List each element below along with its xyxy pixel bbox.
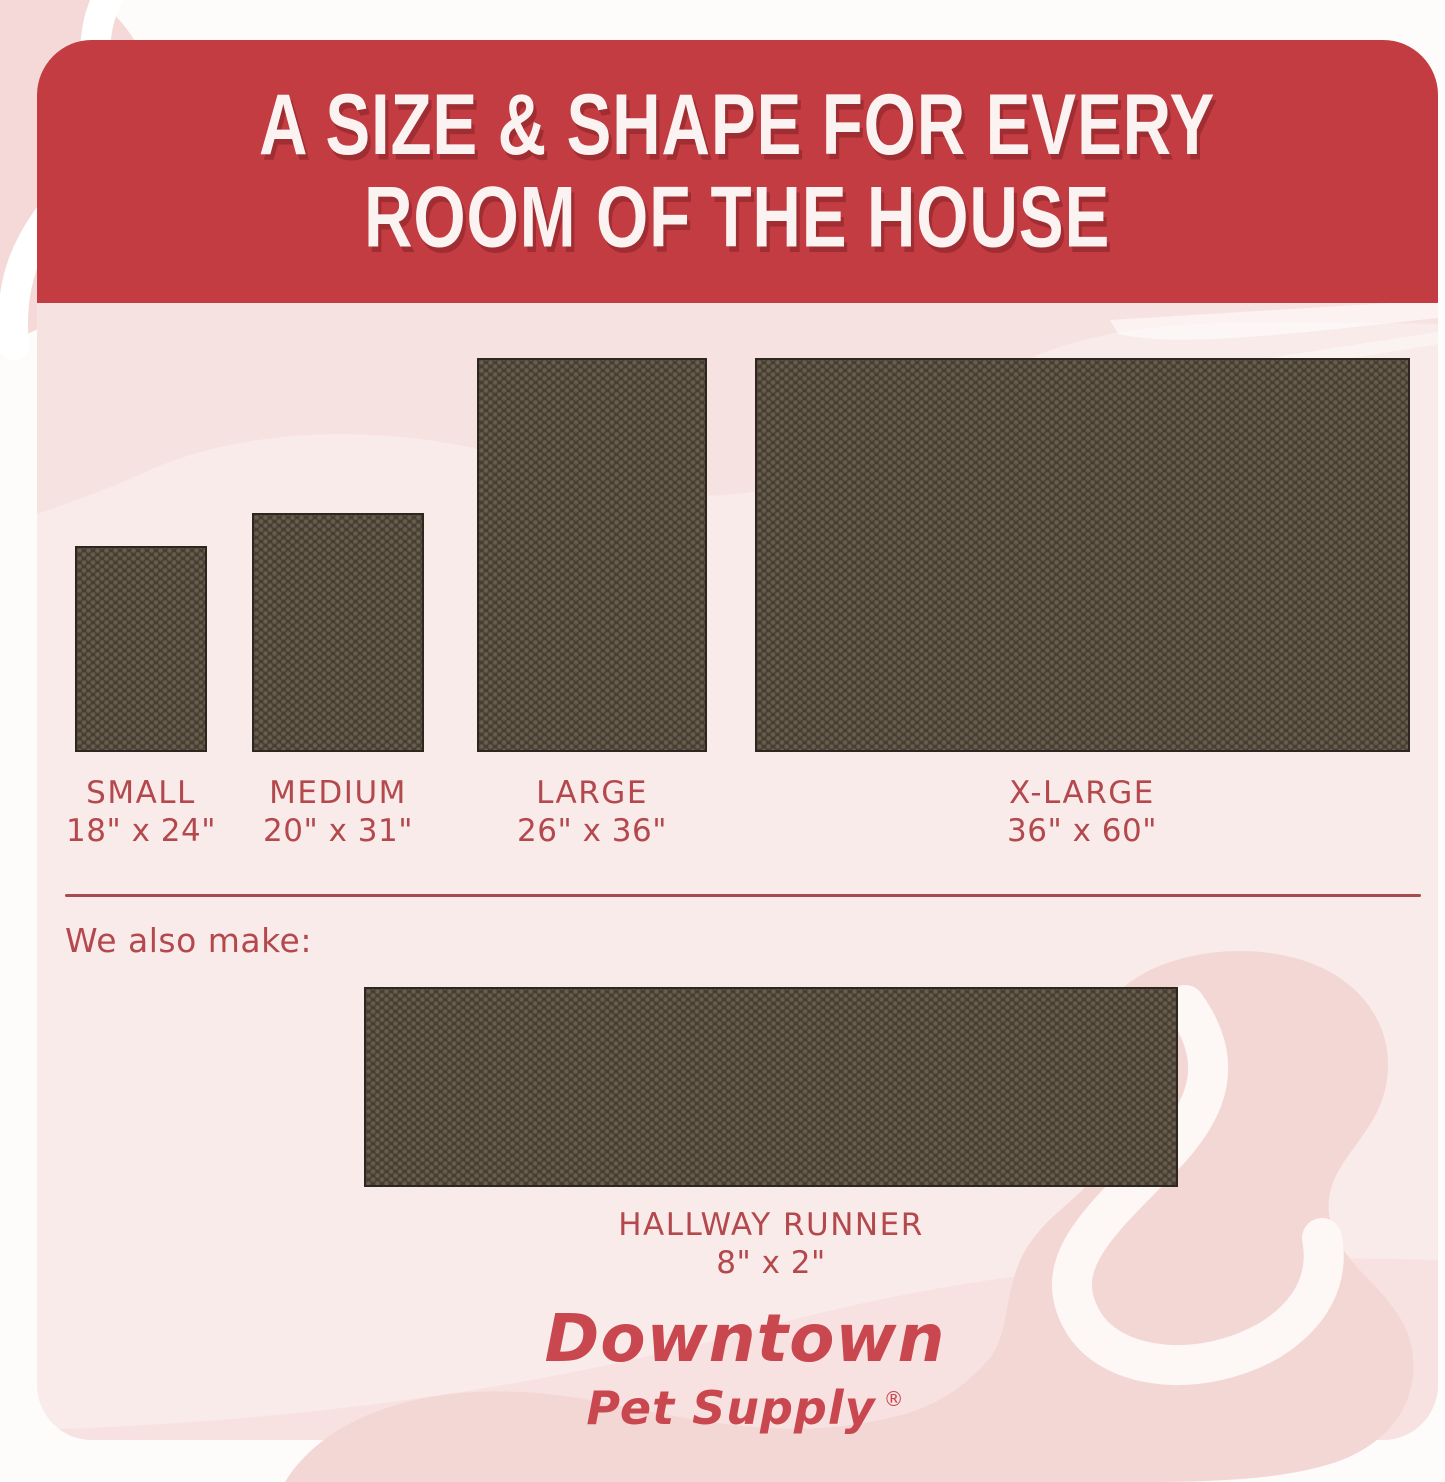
size-dimensions: 36" x 60": [922, 812, 1242, 850]
mat-hallway-runner-swatch: [364, 987, 1178, 1187]
size-name: HALLWAY RUNNER: [471, 1206, 1071, 1244]
brand-name-text: Pet Supply: [586, 1381, 875, 1435]
brand-logo: Downtown Pet Supply®: [395, 1306, 1095, 1433]
content-layer: A SIZE & SHAPE FOR EVERY ROOM OF THE HOU…: [0, 0, 1445, 1482]
mat-large-swatch: [477, 358, 707, 752]
infographic-page: A SIZE & SHAPE FOR EVERY ROOM OF THE HOU…: [0, 0, 1445, 1482]
registered-trademark-symbol: ®: [884, 1387, 904, 1411]
mat-medium-swatch: [252, 513, 424, 752]
size-label-hallway-runner: HALLWAY RUNNER 8" x 2": [471, 1206, 1071, 1282]
section-divider: [65, 894, 1421, 897]
mat-small-swatch: [75, 546, 207, 752]
size-label-xlarge: X-LARGE 36" x 60": [922, 774, 1242, 850]
size-name: LARGE: [432, 774, 752, 812]
page-title-line2: ROOM OF THE HOUSE: [259, 172, 1215, 264]
size-name: X-LARGE: [922, 774, 1242, 812]
size-dimensions: 26" x 36": [432, 812, 752, 850]
page-title-line1: A SIZE & SHAPE FOR EVERY: [259, 79, 1215, 171]
also-make-text: We also make:: [65, 921, 312, 960]
size-label-large: LARGE 26" x 36": [432, 774, 752, 850]
mat-xlarge-swatch: [755, 358, 1410, 752]
page-title: A SIZE & SHAPE FOR EVERY ROOM OF THE HOU…: [259, 79, 1215, 264]
header-banner: A SIZE & SHAPE FOR EVERY ROOM OF THE HOU…: [37, 40, 1438, 303]
size-dimensions: 8" x 2": [471, 1244, 1071, 1282]
brand-name-line1: Downtown: [395, 1306, 1095, 1372]
brand-name-line2: Pet Supply®: [395, 1374, 1095, 1433]
